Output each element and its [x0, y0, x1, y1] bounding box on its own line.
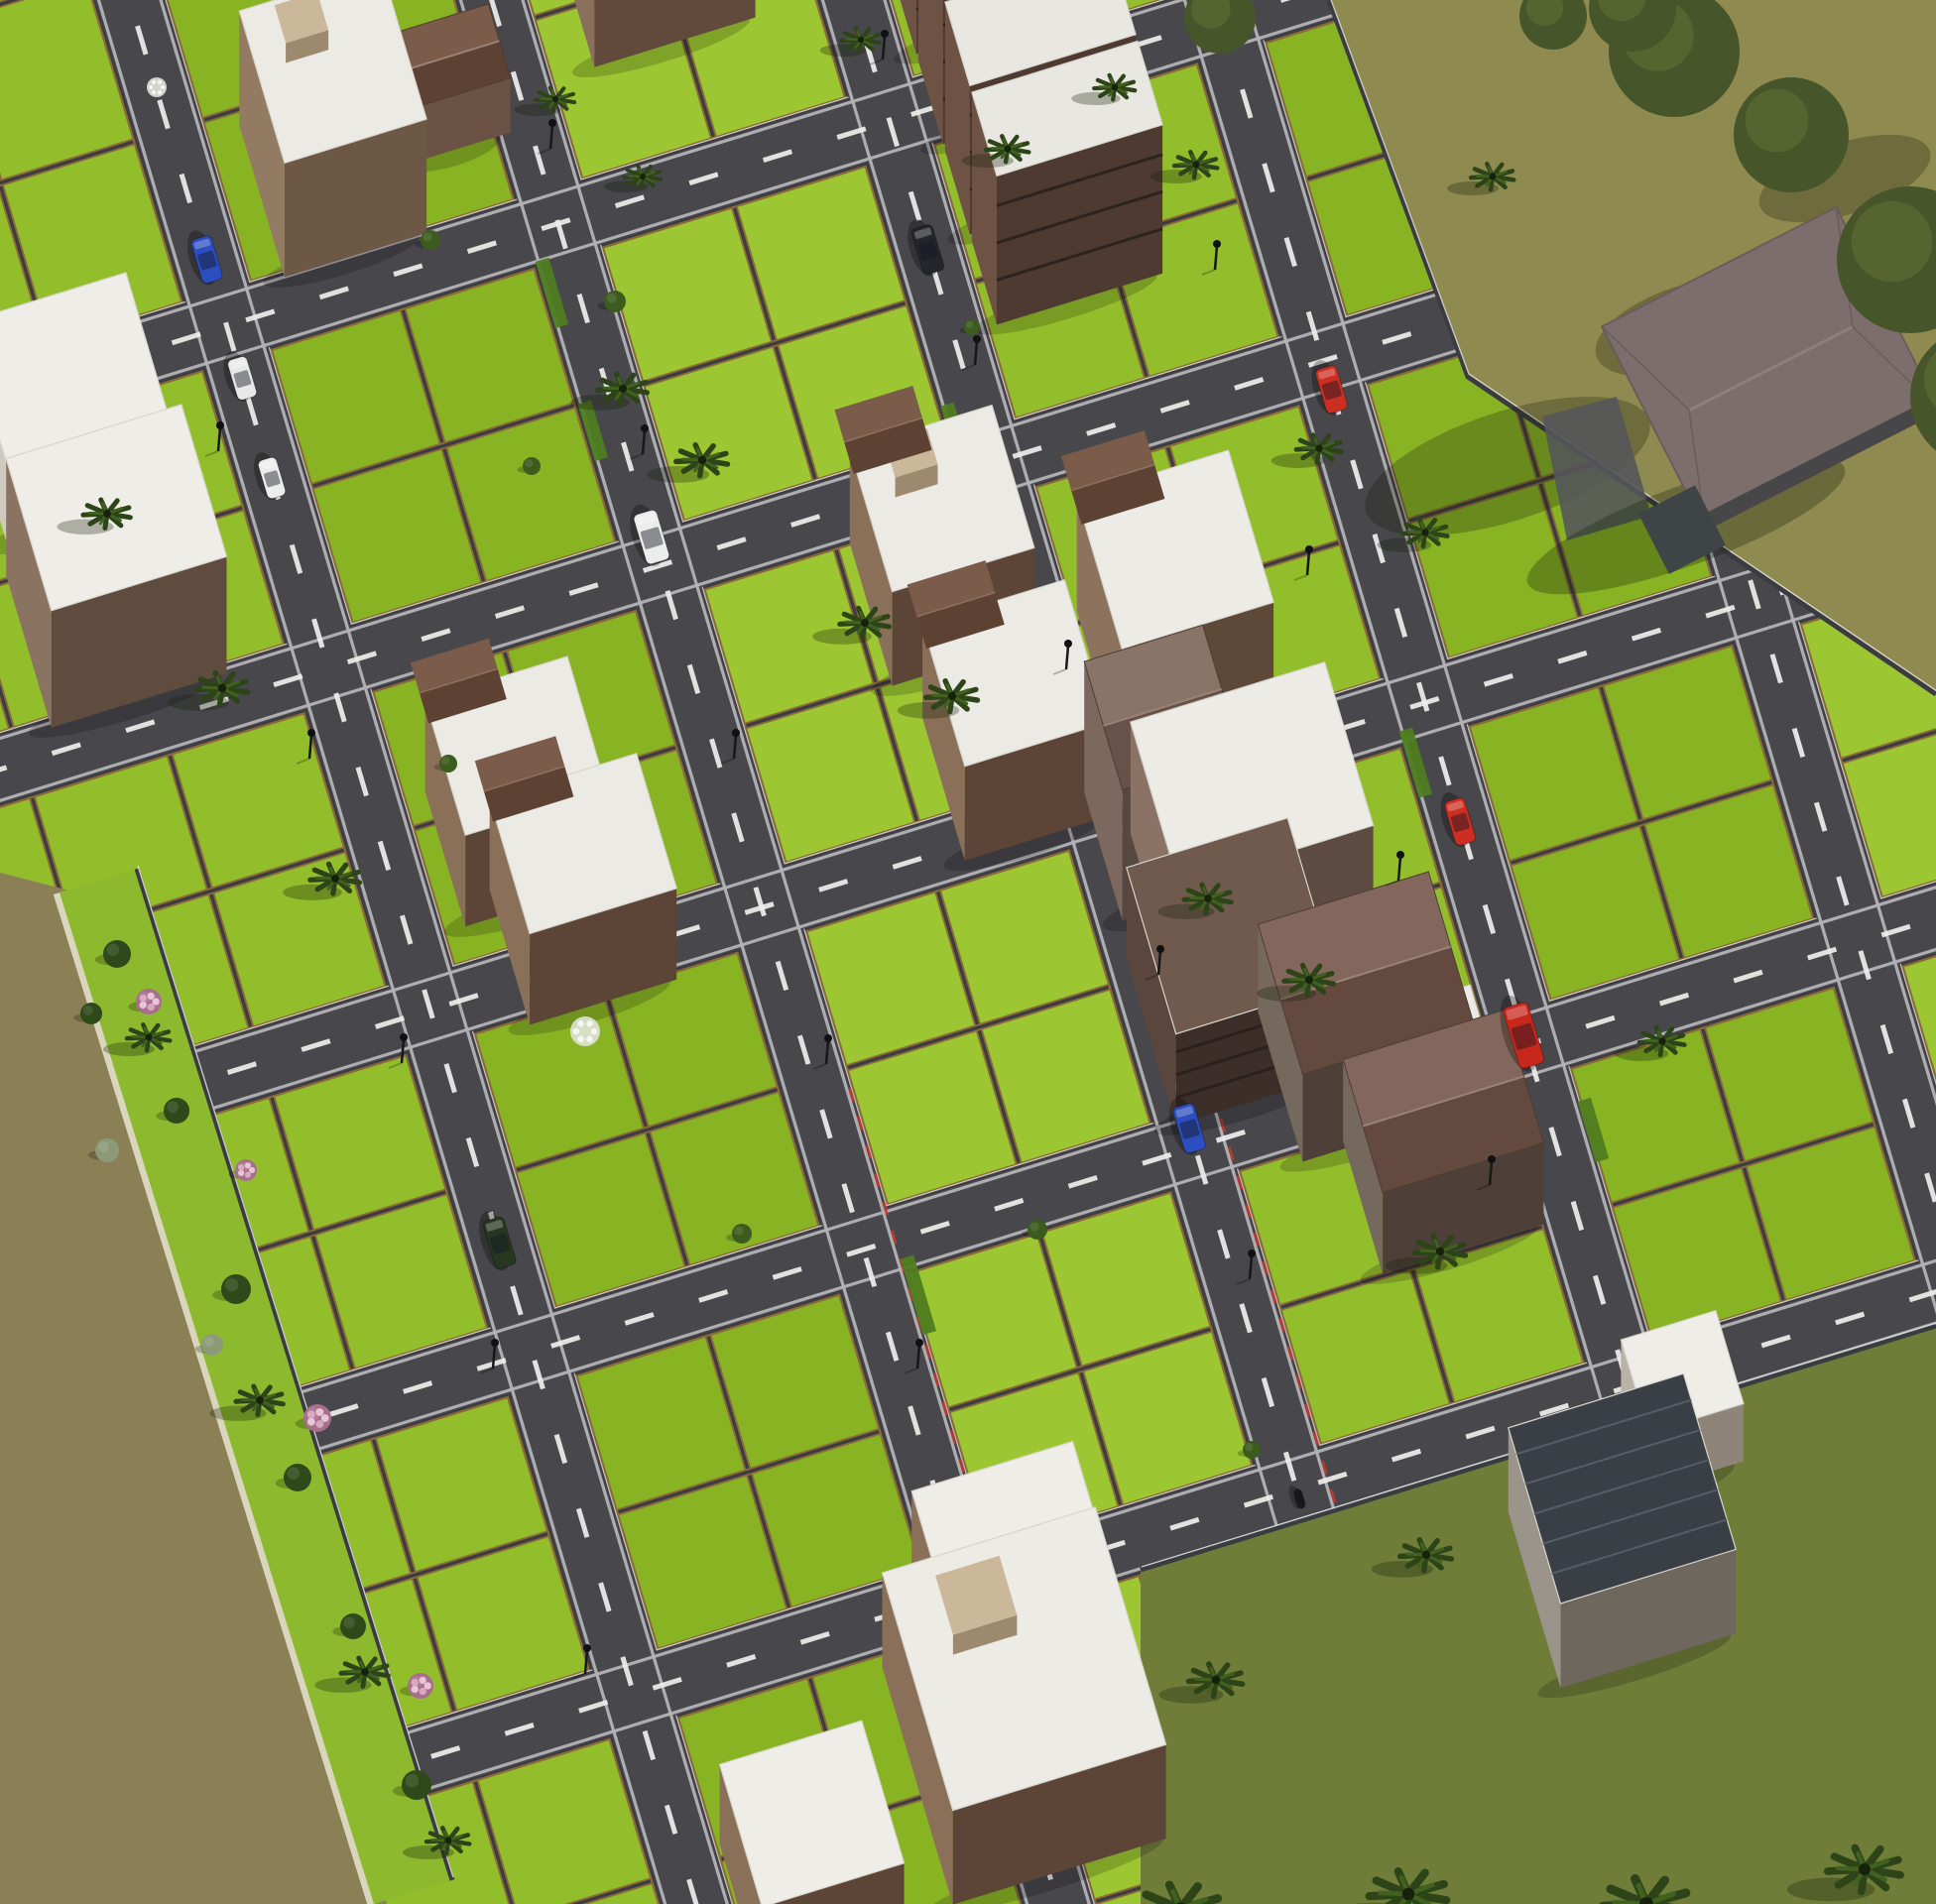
screenshot-root — [0, 0, 1936, 1904]
township-aerial-render — [0, 0, 1936, 1904]
